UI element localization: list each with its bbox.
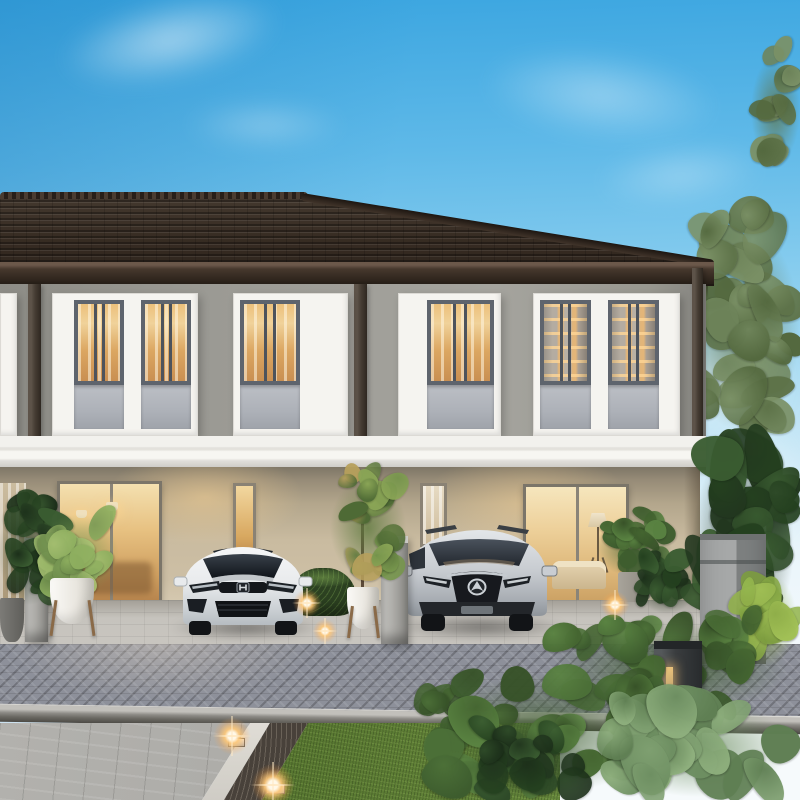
side-mirror bbox=[542, 566, 557, 576]
potted-tree-divider bbox=[326, 462, 410, 584]
window-spandrel bbox=[141, 385, 191, 429]
window-sash bbox=[74, 300, 124, 429]
leaf bbox=[542, 664, 593, 701]
window-sash bbox=[540, 300, 591, 429]
side-mirror bbox=[299, 577, 312, 586]
window-spandrel bbox=[540, 385, 591, 429]
window-spandrel bbox=[74, 385, 124, 429]
leaf bbox=[782, 66, 800, 86]
strip-light-fixture bbox=[266, 784, 285, 794]
townhouse-exterior-scene: Photorealistic dusk rendering of a moder… bbox=[0, 0, 800, 800]
upper-window-partial bbox=[0, 293, 17, 436]
window-sash bbox=[427, 300, 494, 429]
strip-light-fixture bbox=[228, 738, 245, 747]
upper-window-1 bbox=[52, 293, 198, 436]
window-spandrel bbox=[608, 385, 659, 429]
dark-planter bbox=[0, 598, 24, 642]
wheel bbox=[189, 621, 211, 635]
upper-window-3 bbox=[398, 293, 501, 436]
window-glass bbox=[608, 300, 659, 385]
mazda-suv bbox=[395, 514, 559, 634]
roof-ridge-tiles bbox=[0, 192, 308, 199]
window-glass bbox=[427, 300, 494, 385]
eave-fascia bbox=[0, 262, 714, 284]
background-tree-top bbox=[748, 40, 800, 170]
window-spandrel bbox=[427, 385, 494, 429]
foreground-big-leaves bbox=[596, 686, 800, 800]
wheel bbox=[421, 614, 445, 631]
window-glass bbox=[74, 300, 124, 385]
window-glass bbox=[141, 300, 191, 385]
skid-plate bbox=[461, 606, 493, 614]
window-spandrel bbox=[240, 385, 300, 429]
upper-window-4 bbox=[533, 293, 680, 436]
window-glass bbox=[540, 300, 591, 385]
honda-hatchback bbox=[173, 533, 313, 637]
wheel bbox=[509, 614, 533, 631]
bottom-center-shrub bbox=[464, 718, 594, 800]
wheel bbox=[275, 621, 297, 635]
window-sash bbox=[141, 300, 191, 429]
side-mirror bbox=[174, 577, 187, 586]
door-frame-mullion bbox=[576, 487, 579, 609]
upper-window-2 bbox=[233, 293, 348, 436]
windshield bbox=[203, 554, 283, 578]
cloud bbox=[150, 90, 380, 160]
window-sash bbox=[240, 300, 300, 429]
window-sash bbox=[608, 300, 659, 429]
lower-intake bbox=[215, 601, 271, 617]
window-glass bbox=[240, 300, 300, 385]
